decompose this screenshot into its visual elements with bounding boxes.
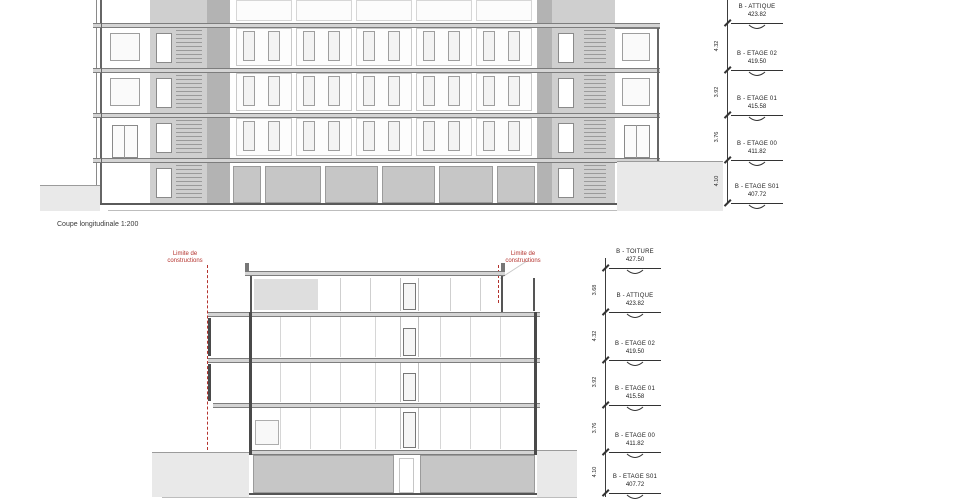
- partition-line: [370, 278, 371, 311]
- door-opening: [558, 78, 574, 108]
- level-name: B - ETAGE S01: [604, 474, 666, 482]
- partition-line: [450, 278, 451, 311]
- level-value: 427.50: [604, 257, 666, 265]
- door-mullion: [636, 125, 637, 158]
- partition-line: [375, 408, 376, 449]
- garage-panel: [325, 166, 378, 203]
- corridor-wall: [418, 408, 419, 449]
- floor-slab: [208, 312, 540, 317]
- window: [328, 31, 340, 61]
- window: [268, 31, 280, 61]
- corridor-wall: [400, 278, 401, 311]
- partition-line: [340, 363, 341, 402]
- attique-wall: [250, 276, 252, 312]
- partition-line: [340, 317, 341, 357]
- window: [448, 31, 460, 61]
- balcony-slab: [93, 158, 101, 163]
- terrain: [152, 452, 249, 497]
- balcony-edge: [208, 318, 211, 356]
- construction-limit-label-left: Limite de constructions: [162, 251, 208, 265]
- door-opening: [558, 33, 574, 63]
- level-datum-symbol: [626, 494, 644, 500]
- interlevel-dimension: 3.76: [714, 131, 724, 143]
- floor-slab: [100, 23, 660, 28]
- window: [243, 31, 255, 61]
- level-name: B - ATTIQUE: [604, 293, 666, 301]
- window: [328, 121, 340, 151]
- cut-wall: [207, 0, 230, 203]
- door-opening: [399, 458, 414, 493]
- garage-panel: [233, 166, 261, 203]
- window: [483, 121, 495, 151]
- partition-line: [470, 408, 471, 449]
- building-outline: [100, 0, 102, 205]
- construction-limit-text: Limite de: [500, 251, 546, 258]
- level-value: 411.82: [726, 149, 788, 157]
- level-value: 419.50: [726, 59, 788, 67]
- construction-limit-text: Limite de: [162, 251, 208, 258]
- window: [423, 31, 435, 61]
- cut-wall: [537, 0, 552, 203]
- window-bay: [236, 0, 292, 21]
- interlevel-dimension: 4.10: [714, 175, 724, 187]
- stair-hatch: [584, 30, 606, 64]
- window: [508, 76, 520, 106]
- floor-slab: [100, 68, 660, 73]
- partition-line: [280, 363, 281, 402]
- garage-panel: [253, 455, 394, 493]
- window: [110, 33, 140, 61]
- level-name: B - ETAGE 02: [604, 341, 666, 349]
- garage-panel: [420, 455, 535, 493]
- level-name: B - ETAGE 01: [604, 386, 666, 394]
- interlevel-dimension: 3.68: [592, 284, 602, 296]
- terrain: [617, 161, 723, 211]
- balcony-edge: [208, 364, 211, 401]
- door-opening: [403, 373, 416, 401]
- corridor-wall: [400, 408, 401, 449]
- level-name: B - TOITURE: [604, 249, 666, 257]
- garage-panel: [497, 166, 535, 203]
- cut-wall: [534, 312, 537, 455]
- level-value: 411.82: [604, 441, 666, 449]
- level-datum-symbol: [626, 406, 644, 413]
- construction-limit-label-right: Limite de constructions: [500, 251, 546, 265]
- terrain: [40, 185, 100, 211]
- terrain: [537, 450, 577, 497]
- door-opening: [156, 78, 172, 108]
- window-bay: [476, 0, 532, 21]
- stair-hatch: [584, 75, 606, 109]
- building-base-line: [100, 203, 660, 205]
- window: [110, 78, 140, 106]
- window: [622, 33, 650, 61]
- building-base-line: [249, 493, 537, 495]
- level-name: B - ETAGE 02: [726, 51, 788, 59]
- garage-panel: [265, 166, 321, 203]
- partition-line: [440, 317, 441, 357]
- partition-line: [480, 278, 481, 311]
- window: [255, 420, 279, 445]
- construction-limit-text: constructions: [500, 258, 546, 265]
- partition-line: [340, 278, 341, 311]
- architectural-drawing-sheet: B - ATTIQUE423.82B - ETAGE 02419.50B - E…: [0, 0, 960, 500]
- corridor-wall: [418, 317, 419, 357]
- partition-line: [500, 317, 501, 357]
- partition-line: [280, 408, 281, 449]
- level-value: 407.72: [604, 482, 666, 490]
- partition-line: [440, 408, 441, 449]
- partition-line: [340, 408, 341, 449]
- level-datum-symbol: [626, 453, 644, 460]
- level-value: 415.58: [604, 394, 666, 402]
- level-name: B - ETAGE 00: [726, 141, 788, 149]
- level-value: 407.72: [726, 192, 788, 200]
- foundation-line: [108, 210, 660, 211]
- stair-hatch: [584, 120, 606, 154]
- corridor-wall: [418, 363, 419, 402]
- cross-section: B - TOITURE427.50B - ATTIQUE423.82B - ET…: [0, 240, 960, 500]
- partition-line: [280, 317, 281, 357]
- balcony-slab: [93, 68, 101, 73]
- window: [363, 31, 375, 61]
- window: [508, 121, 520, 151]
- partition-line: [440, 363, 441, 402]
- stair-hatch: [584, 165, 606, 199]
- window: [303, 31, 315, 61]
- level-name: B - ETAGE 00: [604, 433, 666, 441]
- level-name: B - ETAGE 01: [726, 96, 788, 104]
- window: [268, 76, 280, 106]
- partition-line: [310, 363, 311, 402]
- partition-line: [310, 317, 311, 357]
- shaded-wall: [254, 279, 318, 310]
- door-opening: [558, 168, 574, 198]
- window: [388, 31, 400, 61]
- stair-hatch: [176, 75, 202, 109]
- window: [363, 76, 375, 106]
- door-opening: [403, 412, 416, 448]
- window: [268, 121, 280, 151]
- partition-line: [500, 363, 501, 402]
- window-bay: [416, 0, 472, 21]
- garage-panel: [382, 166, 435, 203]
- window: [483, 76, 495, 106]
- stair-hatch: [176, 165, 202, 199]
- window: [423, 76, 435, 106]
- window: [388, 121, 400, 151]
- corridor-wall: [400, 317, 401, 357]
- partition-line: [375, 317, 376, 357]
- interlevel-dimension: 4.10: [592, 466, 602, 478]
- window: [423, 121, 435, 151]
- stair-hatch: [176, 30, 202, 64]
- partition-line: [375, 363, 376, 402]
- partition-line: [500, 408, 501, 449]
- window: [303, 121, 315, 151]
- level-datum-symbol: [748, 204, 766, 211]
- partition-line: [470, 363, 471, 402]
- garage-panel: [439, 166, 493, 203]
- window: [622, 78, 650, 106]
- interlevel-dimension: 4.32: [714, 40, 724, 52]
- level-datum-symbol: [626, 313, 644, 320]
- level-datum-symbol: [748, 24, 766, 31]
- level-value: 423.82: [604, 301, 666, 309]
- attique-wall: [501, 276, 503, 312]
- door-mullion: [124, 125, 125, 158]
- balcony-slab: [93, 23, 101, 28]
- level-datum-symbol: [748, 116, 766, 123]
- level-value: 415.58: [726, 104, 788, 112]
- balcony-slab: [93, 113, 101, 118]
- window: [363, 121, 375, 151]
- window: [303, 76, 315, 106]
- cut-wall: [249, 312, 252, 455]
- floor-slab: [100, 113, 660, 118]
- level-value: 419.50: [604, 349, 666, 357]
- window: [448, 121, 460, 151]
- window: [483, 31, 495, 61]
- window: [508, 31, 520, 61]
- window: [243, 121, 255, 151]
- window: [388, 76, 400, 106]
- interlevel-dimension: 4.32: [592, 330, 602, 342]
- window-bay: [296, 0, 352, 21]
- partition-line: [470, 317, 471, 357]
- window: [243, 76, 255, 106]
- french-door: [624, 125, 650, 158]
- roof-slab: [245, 271, 505, 276]
- terrace-railing: [533, 278, 535, 311]
- window: [328, 76, 340, 106]
- window-bay: [356, 0, 412, 21]
- construction-limit-text: constructions: [162, 258, 208, 265]
- longitudinal-section: B - ATTIQUE423.82B - ETAGE 02419.50B - E…: [0, 0, 960, 240]
- door-opening: [403, 283, 416, 310]
- door-opening: [156, 33, 172, 63]
- floor-slab: [208, 358, 540, 363]
- interlevel-dimension: 3.92: [714, 86, 724, 98]
- floor-slab: [100, 158, 660, 163]
- interlevel-dimension: 3.92: [592, 376, 602, 388]
- level-value: 423.82: [726, 12, 788, 20]
- door-opening: [558, 123, 574, 153]
- corridor-wall: [418, 278, 419, 311]
- level-datum-symbol: [626, 269, 644, 276]
- french-door: [112, 125, 138, 158]
- door-opening: [156, 168, 172, 198]
- level-datum-symbol: [748, 71, 766, 78]
- level-datum-symbol: [626, 361, 644, 368]
- stair-hatch: [176, 120, 202, 154]
- partition-line: [310, 408, 311, 449]
- window: [448, 76, 460, 106]
- level-name: B - ETAGE S01: [726, 184, 788, 192]
- roof-post: [245, 263, 249, 272]
- section-caption: Coupe longitudinale 1:200: [57, 221, 138, 228]
- foundation-line: [162, 497, 577, 498]
- level-datum-symbol: [748, 161, 766, 168]
- floor-slab: [213, 403, 540, 408]
- door-opening: [156, 123, 172, 153]
- level-name: B - ATTIQUE: [726, 4, 788, 12]
- corridor-wall: [400, 363, 401, 402]
- interlevel-dimension: 3.76: [592, 422, 602, 434]
- building-outline: [657, 28, 659, 162]
- door-opening: [403, 328, 416, 356]
